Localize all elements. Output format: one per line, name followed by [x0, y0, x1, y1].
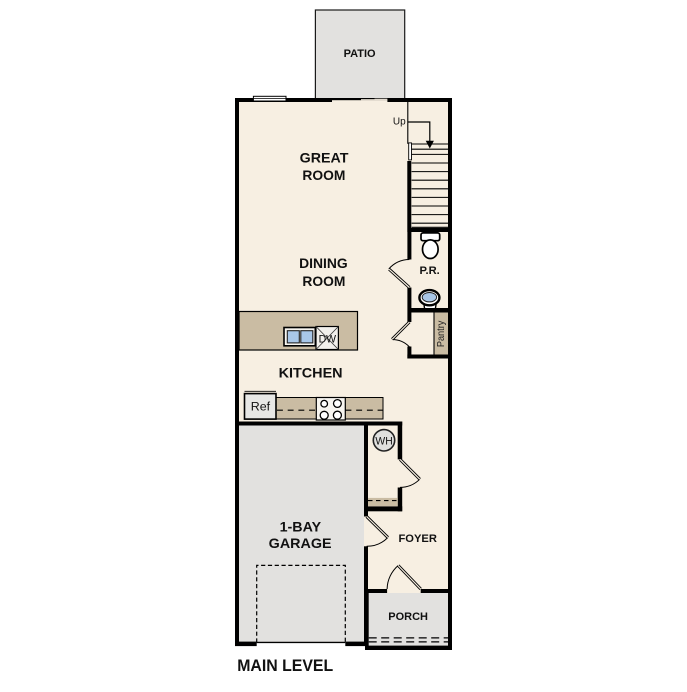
- svg-text:GREAT: GREAT: [300, 149, 349, 165]
- svg-text:P.R.: P.R.: [420, 265, 440, 277]
- svg-text:DINING: DINING: [299, 255, 348, 271]
- svg-text:Pantry: Pantry: [435, 320, 447, 347]
- svg-text:MAIN LEVEL: MAIN LEVEL: [237, 657, 333, 675]
- svg-text:ROOM: ROOM: [302, 273, 345, 289]
- svg-text:GARAGE: GARAGE: [269, 535, 332, 551]
- svg-text:PORCH: PORCH: [388, 611, 428, 623]
- svg-text:Up: Up: [393, 117, 406, 128]
- svg-text:Ref: Ref: [251, 402, 271, 414]
- svg-text:ROOM: ROOM: [302, 167, 345, 183]
- svg-text:WH: WH: [375, 436, 392, 448]
- svg-text:PATIO: PATIO: [344, 48, 376, 60]
- svg-text:1-BAY: 1-BAY: [280, 518, 322, 534]
- svg-text:DW: DW: [319, 333, 337, 345]
- svg-text:FOYER: FOYER: [399, 533, 437, 545]
- svg-text:KITCHEN: KITCHEN: [279, 365, 343, 381]
